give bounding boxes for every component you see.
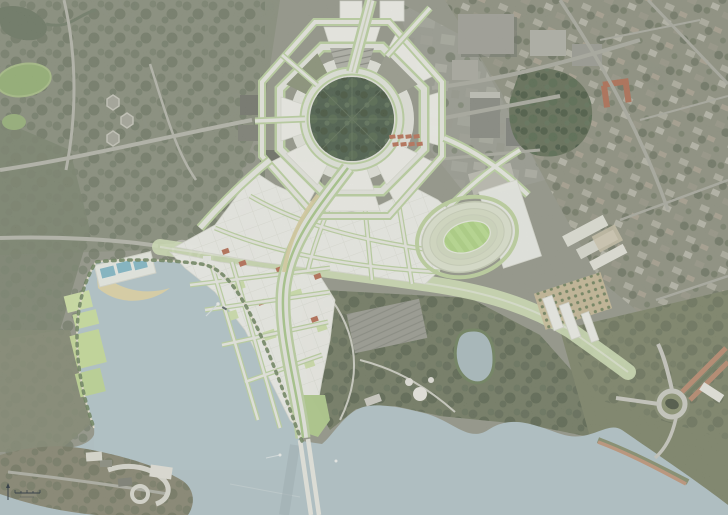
aerial-map-canvas: campus and forest west side inner suburb…	[0, 0, 728, 515]
masterplan-aerial-image: campus and forest west side inner suburb…	[0, 0, 728, 515]
photo-grain	[0, 0, 728, 515]
